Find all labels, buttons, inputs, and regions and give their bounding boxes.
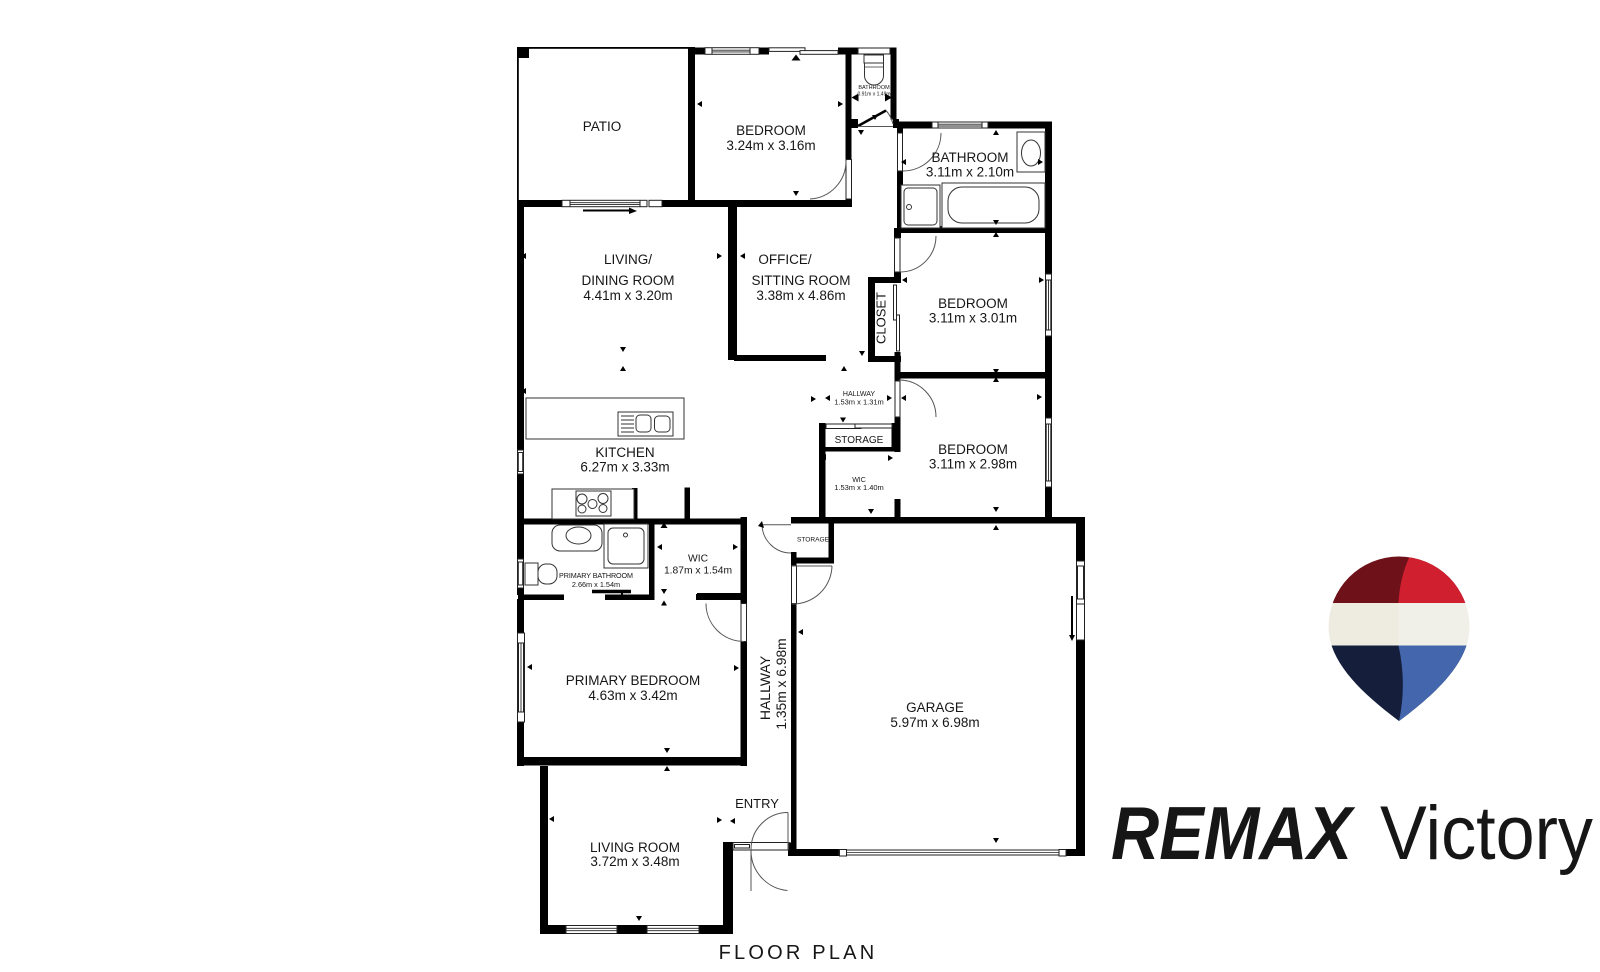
svg-text:Victory: Victory [1380,791,1593,876]
svg-text:BATHROOM: BATHROOM [858,85,890,91]
svg-text:4.63m x 3.42m: 4.63m x 3.42m [588,688,677,703]
svg-text:BEDROOM: BEDROOM [938,296,1008,311]
svg-text:2.66m x 1.54m: 2.66m x 1.54m [572,580,620,589]
svg-text:BEDROOM: BEDROOM [736,123,806,138]
svg-text:3.11m x 2.10m: 3.11m x 2.10m [926,165,1014,180]
svg-text:LIVING/: LIVING/ [604,252,652,267]
svg-text:OFFICE/: OFFICE/ [758,252,811,267]
svg-text:STORAGE: STORAGE [797,537,830,544]
svg-text:3.72m x 3.48m: 3.72m x 3.48m [590,854,679,869]
svg-text:3.11m x 2.98m: 3.11m x 2.98m [929,457,1017,472]
svg-text:1.53m x 1.31m: 1.53m x 1.31m [834,398,884,407]
svg-text:WIC: WIC [688,554,709,565]
svg-text:1.35m x 6.98m: 1.35m x 6.98m [774,638,789,729]
svg-text:3.38m x 4.86m: 3.38m x 4.86m [756,288,845,303]
svg-text:4.41m x 3.20m: 4.41m x 3.20m [583,288,672,303]
svg-text:ENTRY: ENTRY [735,796,779,811]
svg-text:CLOSET: CLOSET [874,292,889,344]
svg-text:3.24m x 3.16m: 3.24m x 3.16m [726,138,815,153]
svg-text:REMAX: REMAX [1111,791,1356,875]
svg-text:3.11m x 3.01m: 3.11m x 3.01m [929,311,1017,326]
svg-text:PRIMARY BATHROOM: PRIMARY BATHROOM [559,571,633,580]
svg-text:1.53m x 1.40m: 1.53m x 1.40m [834,483,884,492]
svg-text:PRIMARY BEDROOM: PRIMARY BEDROOM [566,673,701,688]
svg-text:STORAGE: STORAGE [835,435,884,446]
svg-text:1.87m x 1.54m: 1.87m x 1.54m [664,566,732,577]
svg-text:KITCHEN: KITCHEN [595,445,654,460]
svg-text:SITTING ROOM: SITTING ROOM [752,273,851,288]
svg-text:5.97m x 6.98m: 5.97m x 6.98m [890,715,979,730]
svg-text:FLOOR PLAN: FLOOR PLAN [719,942,878,964]
svg-text:LIVING ROOM: LIVING ROOM [590,840,680,855]
svg-text:GARAGE: GARAGE [906,700,964,715]
svg-text:PATIO: PATIO [583,119,622,134]
svg-text:HALLWAY: HALLWAY [757,655,773,720]
svg-text:0.91m x 1.49m: 0.91m x 1.49m [857,92,890,98]
svg-text:6.27m x 3.33m: 6.27m x 3.33m [580,460,669,475]
svg-text:BEDROOM: BEDROOM [938,442,1008,457]
svg-text:BATHROOM: BATHROOM [932,150,1009,165]
svg-text:DINING ROOM: DINING ROOM [582,273,675,288]
